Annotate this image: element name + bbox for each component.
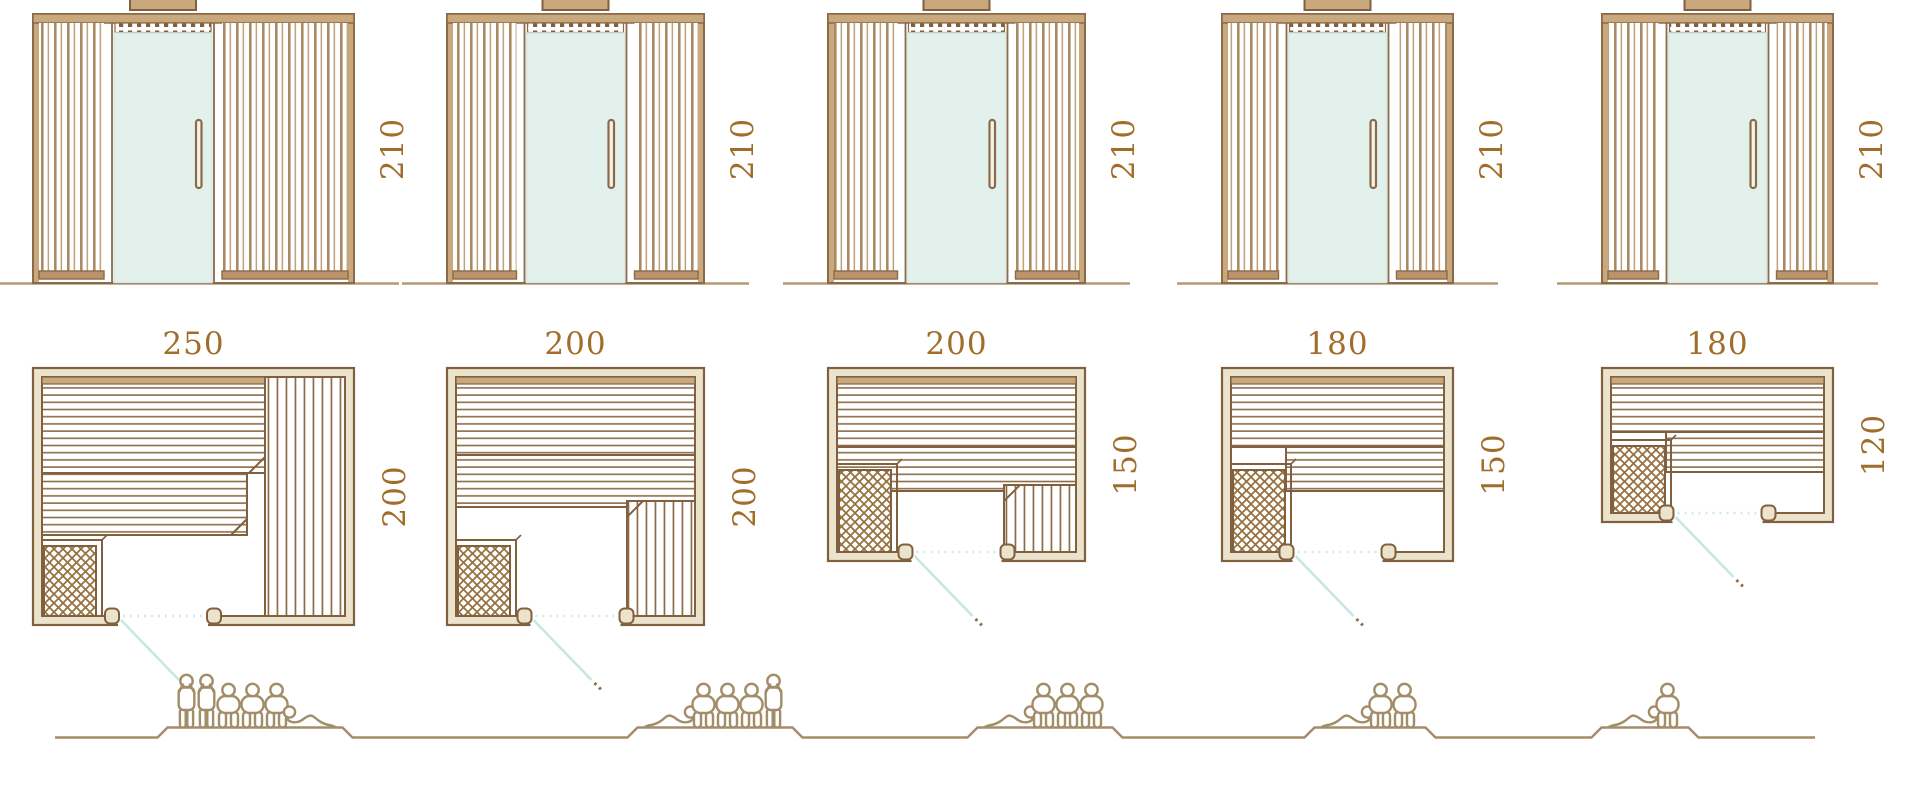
door-post-left <box>1280 545 1294 560</box>
top-rail <box>33 14 354 23</box>
slat-wall-left <box>1608 23 1659 272</box>
door-vent-slats <box>528 23 624 33</box>
dimension-label: 200 <box>727 465 763 527</box>
roof-vent-cap <box>1685 0 1751 10</box>
door-post-left <box>105 609 119 624</box>
slat-wall-right <box>1397 23 1448 272</box>
seated-figure <box>242 684 264 728</box>
roof-vent-cap <box>130 0 196 10</box>
door-post-left <box>1660 506 1674 521</box>
door-swing-line <box>1296 556 1354 616</box>
door-post-right <box>620 609 634 624</box>
door-post-right <box>207 609 221 624</box>
lying-left-figure <box>986 706 1037 726</box>
door-post-right <box>1382 545 1396 560</box>
lying-left-figure <box>1323 706 1374 726</box>
sauna-4-capacity-group <box>1323 684 1416 728</box>
dimension-label: 210 <box>1474 118 1510 180</box>
seated-figure <box>1033 684 1055 728</box>
slat-wall-right <box>1016 23 1080 272</box>
sauna-5-elevation: 210 <box>1557 0 1890 284</box>
wall-base-left <box>39 271 104 279</box>
lower-bench <box>42 473 247 535</box>
dimension-label: 210 <box>1106 118 1142 180</box>
bench-back-rail <box>1231 377 1444 384</box>
roof-vent-cap <box>1305 0 1371 10</box>
door-handle-mark <box>1357 619 1366 628</box>
seated-figure <box>1657 684 1679 728</box>
capacity-baseline <box>55 728 1815 738</box>
door-handle <box>1371 120 1377 188</box>
door-swing-line <box>915 556 973 616</box>
door-vent-slats <box>1670 23 1766 33</box>
sauna-lineup-diagram: 2102502002102002002102001502101801502101… <box>0 0 1920 789</box>
corner-post-right <box>1827 15 1832 282</box>
sauna-1-capacity-group <box>179 675 335 728</box>
top-rail <box>828 14 1085 23</box>
door-swing-line <box>534 620 592 680</box>
sauna-2-column: 210200200 <box>402 0 763 692</box>
standing-figure <box>179 675 195 728</box>
wall-base-right <box>1777 271 1828 279</box>
slat-wall-left <box>1228 23 1279 272</box>
corner-post-right <box>1447 15 1452 282</box>
corner-post-left <box>1603 15 1608 282</box>
sauna-2-capacity-group <box>646 675 782 728</box>
lower-bench <box>1666 432 1824 472</box>
roof-vent-cap <box>543 0 609 10</box>
slat-wall-left <box>39 23 104 272</box>
lower-bench <box>456 455 695 507</box>
wall-base-right <box>1397 271 1448 279</box>
door-swing-line <box>121 620 179 680</box>
sauna-3-column: 210200150 <box>783 0 1144 628</box>
slat-wall-right <box>1777 23 1828 272</box>
corner-post-left <box>1223 15 1228 282</box>
sauna-3-capacity-group <box>986 684 1103 728</box>
door-handle <box>609 120 615 188</box>
heater <box>1233 470 1285 552</box>
upper-bench <box>1231 377 1444 447</box>
sauna-5-capacity-group <box>1610 684 1679 728</box>
seated-figure <box>218 684 240 728</box>
heater <box>458 546 510 616</box>
seated-figure <box>693 684 715 728</box>
dimension-label: 150 <box>1476 433 1512 495</box>
upper-bench <box>1611 377 1824 432</box>
slat-wall-right <box>222 23 348 272</box>
door-handle-mark <box>1737 580 1746 589</box>
sauna-4-column: 210180150 <box>1177 0 1512 628</box>
upper-bench <box>837 377 1076 447</box>
sauna-2-elevation: 210 <box>402 0 761 284</box>
door-post-left <box>899 545 913 560</box>
roof-vent-cap <box>924 0 990 10</box>
corner-post-left <box>829 15 834 282</box>
door-post-right <box>1762 506 1776 521</box>
top-rail <box>447 14 704 23</box>
door-handle-mark <box>976 619 985 628</box>
sauna-1-floor-plan: 250200 <box>33 326 413 692</box>
wall-base-right <box>635 271 699 279</box>
dimension-label: 200 <box>377 465 413 527</box>
bench-back-rail <box>1611 377 1824 384</box>
seated-figure <box>1057 684 1079 728</box>
sauna-columns: 2102502002102002002102001502101801502101… <box>0 0 1892 692</box>
door-post-right <box>1001 545 1015 560</box>
seated-figure <box>266 684 288 728</box>
upper-bench <box>456 377 695 455</box>
seated-figure <box>1081 684 1103 728</box>
door-handle <box>196 120 202 188</box>
door-swing-line <box>1676 517 1734 577</box>
corner-post-left <box>34 15 39 282</box>
top-rail <box>1222 14 1453 23</box>
wall-base-left <box>1608 271 1659 279</box>
sauna-5-floor-plan: 180120 <box>1602 326 1892 589</box>
bench-back-rail <box>837 377 1076 384</box>
sauna-1-column: 210250200 <box>0 0 413 692</box>
door-post-left <box>518 609 532 624</box>
lying-left-figure <box>1610 706 1661 726</box>
seated-figure <box>717 684 739 728</box>
corner-post-right <box>698 15 703 282</box>
seated-figure <box>1394 684 1416 728</box>
seated-figure <box>741 684 763 728</box>
dimension-label: 180 <box>1686 326 1748 362</box>
heater <box>839 470 891 552</box>
seated-figure <box>1370 684 1392 728</box>
dimension-label: 210 <box>1854 118 1890 180</box>
wall-base-left <box>453 271 517 279</box>
sauna-4-elevation: 210 <box>1177 0 1510 284</box>
side-bench <box>1004 485 1076 552</box>
door-vent-slats <box>115 23 211 33</box>
slat-wall-left <box>453 23 517 272</box>
sauna-5-column: 210180120 <box>1557 0 1892 589</box>
lying-left-figure <box>646 706 697 726</box>
wall-base-left <box>1228 271 1279 279</box>
sauna-4-floor-plan: 180150 <box>1222 326 1512 628</box>
top-rail <box>1602 14 1833 23</box>
upper-bench <box>42 377 265 473</box>
standing-figure <box>199 675 215 728</box>
slat-wall-left <box>834 23 898 272</box>
heater <box>44 546 96 616</box>
dimension-label: 210 <box>725 118 761 180</box>
dimension-label: 200 <box>925 326 987 362</box>
wall-base-left <box>834 271 898 279</box>
dimension-label: 200 <box>544 326 606 362</box>
sauna-2-floor-plan: 200200 <box>447 326 763 692</box>
sauna-lineup-canvas: 2102502002102002002102001502101801502101… <box>0 0 1920 789</box>
bench-back-rail <box>42 377 265 384</box>
sauna-3-elevation: 210 <box>783 0 1142 284</box>
lower-bench <box>1286 447 1444 491</box>
door-vent-slats <box>1290 23 1386 33</box>
corner-post-left <box>448 15 453 282</box>
dimension-label: 180 <box>1306 326 1368 362</box>
wall-base-right <box>222 271 348 279</box>
heater <box>1613 446 1665 513</box>
side-bench <box>265 377 345 616</box>
corner-post-right <box>348 15 353 282</box>
bench-back-rail <box>456 377 695 384</box>
door-handle <box>1751 120 1757 188</box>
capacity-row <box>55 675 1815 738</box>
slat-wall-right <box>635 23 699 272</box>
dimension-label: 250 <box>162 326 224 362</box>
dimension-label: 120 <box>1856 414 1892 476</box>
side-bench <box>627 501 695 616</box>
lying-right-figure <box>284 706 335 726</box>
dimension-label: 210 <box>375 118 411 180</box>
sauna-1-elevation: 210 <box>0 0 411 284</box>
door-handle-mark <box>595 683 604 692</box>
corner-post-right <box>1079 15 1084 282</box>
sauna-3-floor-plan: 200150 <box>828 326 1144 628</box>
door-vent-slats <box>909 23 1005 33</box>
door-handle <box>990 120 996 188</box>
wall-base-right <box>1016 271 1080 279</box>
standing-figure <box>766 675 782 728</box>
dimension-label: 150 <box>1108 433 1144 495</box>
